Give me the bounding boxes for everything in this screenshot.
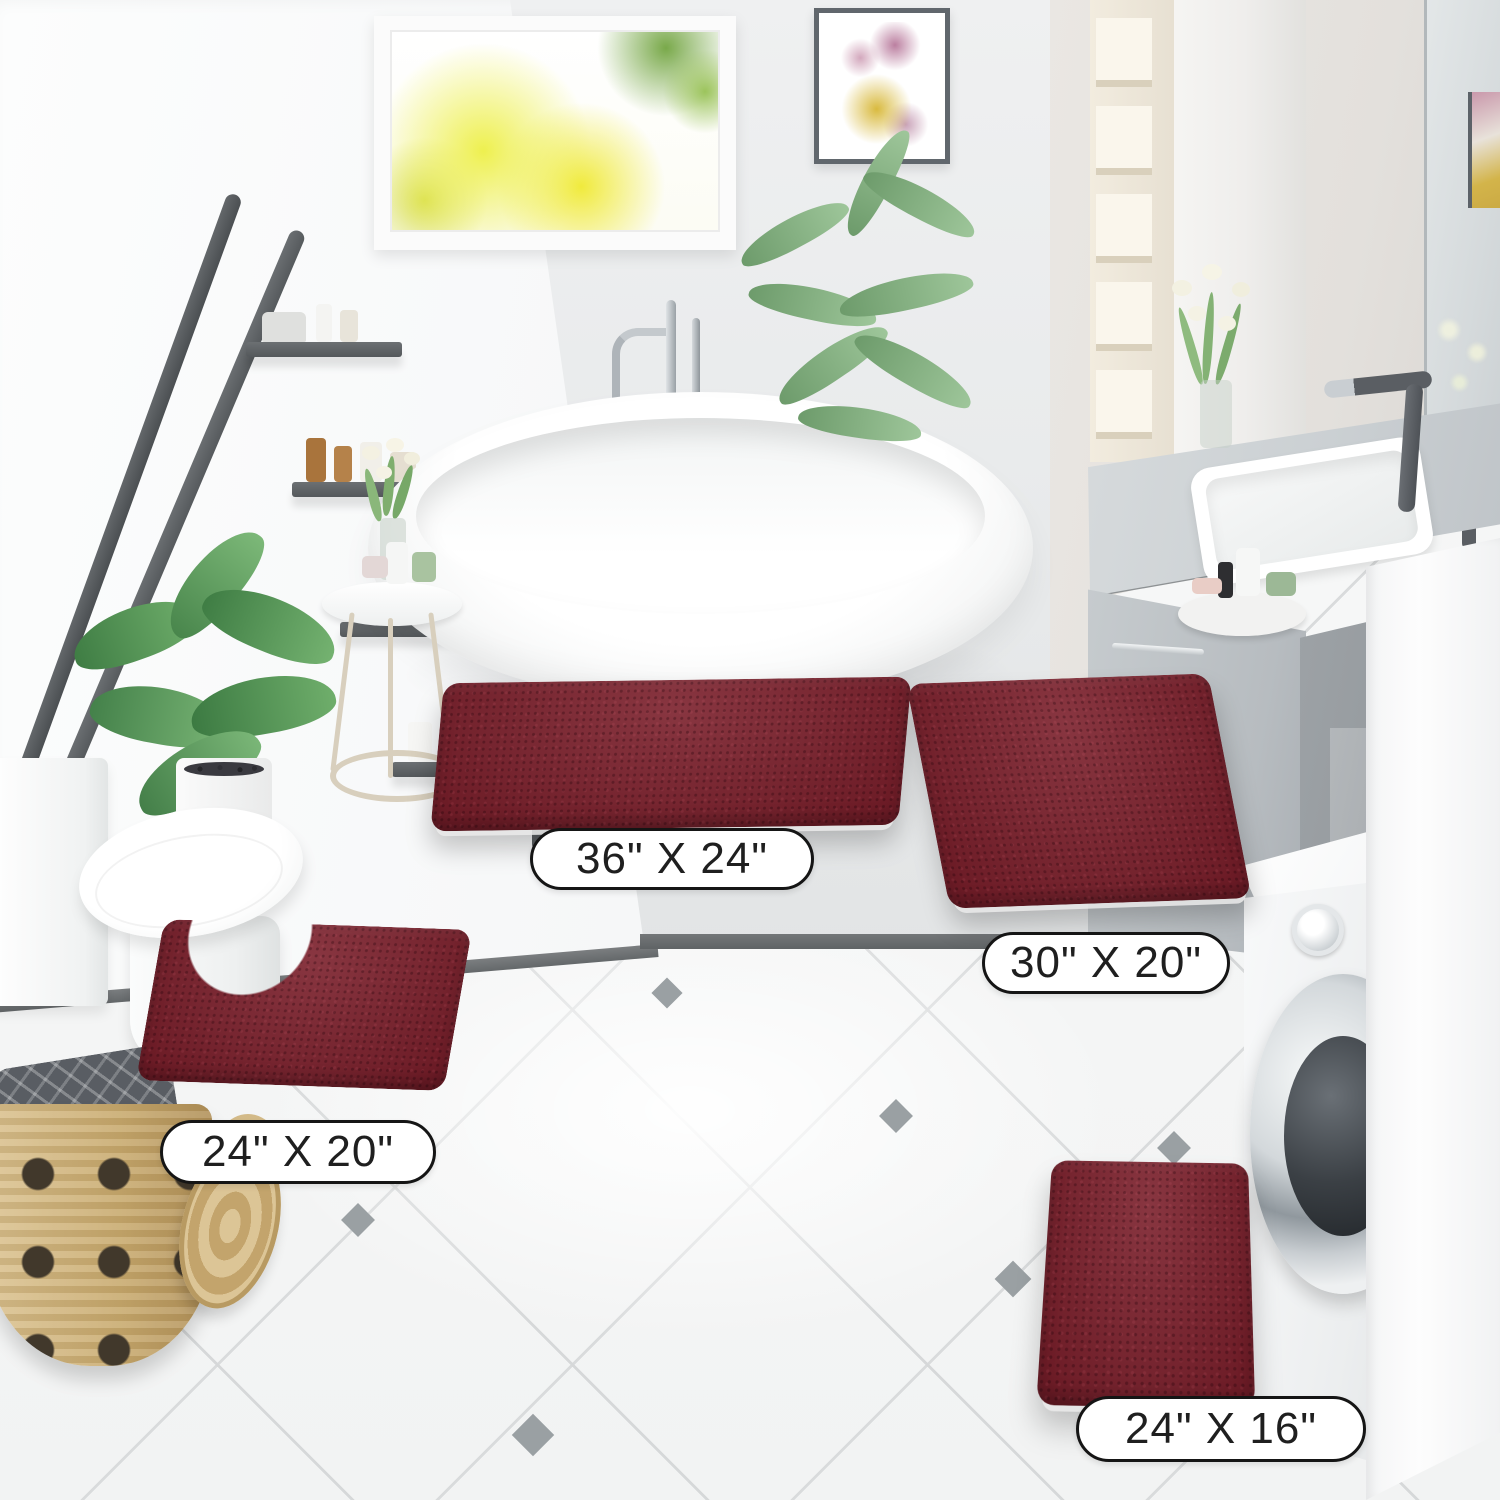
wall-art-painting (828, 22, 936, 150)
toiletry-bottle (316, 304, 332, 342)
white-side-cabinet (1366, 538, 1500, 1500)
wall-art-frame (814, 8, 950, 164)
white-flower (376, 466, 392, 479)
palm-plant (728, 158, 988, 458)
toiletry-bottle (340, 310, 358, 342)
shelf-cubby (1096, 282, 1152, 351)
white-flower (1202, 264, 1222, 280)
size-label-30x20: 30" X 20" (982, 932, 1230, 994)
toiletry-jar (262, 312, 306, 342)
white-flower (1172, 280, 1192, 296)
counter-tray (1178, 592, 1306, 636)
size-label-36x24: 36" X 24" (530, 828, 814, 890)
lotion-bottle (386, 542, 408, 584)
amber-bottle (334, 446, 352, 482)
white-flower (1232, 282, 1250, 297)
shelf-cubby (1096, 18, 1152, 87)
soap-pump (1236, 548, 1260, 596)
size-label-24x20: 24" X 20" (160, 1120, 436, 1184)
rug-24x16 (1036, 1160, 1255, 1409)
green-jar (1266, 572, 1296, 596)
soap-dish (362, 556, 388, 578)
white-flower (404, 452, 420, 465)
cosmetic-item (1192, 578, 1222, 594)
drawer-handle (1112, 643, 1204, 655)
mirror-art-reflection (1468, 92, 1500, 208)
white-flower (1188, 306, 1206, 321)
size-label-24x16: 24" X 16" (1076, 1396, 1366, 1462)
counter-flower-vase (1158, 262, 1278, 462)
white-flower (1218, 316, 1236, 331)
washer-dial (1292, 904, 1344, 956)
shelf-cubby (1096, 370, 1152, 439)
green-jar (412, 552, 436, 582)
shelf-cubby (1096, 106, 1152, 175)
shelf-cubby (1096, 194, 1152, 263)
ladder-shelf-board (246, 342, 402, 357)
white-flower (362, 446, 380, 460)
bathroom-scene: 36" X 24" 30" X 20" 24" X 20" 24" X 16" (0, 0, 1500, 1500)
rug-contour-24x20 (136, 919, 472, 1091)
glass-vase (1200, 380, 1232, 448)
white-flower (386, 438, 404, 452)
rug-36x24 (430, 677, 911, 832)
amber-bottle (306, 438, 326, 482)
rug-30x20 (906, 673, 1251, 908)
laundry-basket (0, 1050, 246, 1380)
